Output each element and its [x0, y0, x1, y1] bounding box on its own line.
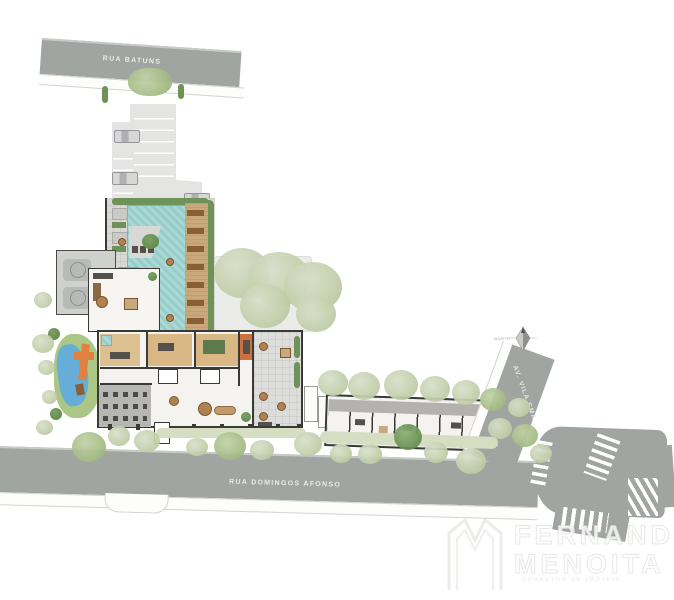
watermark-name-line1: FERNANDO: [514, 522, 674, 549]
tree: [72, 432, 106, 462]
parking-stalls: [134, 108, 174, 184]
table: [277, 402, 286, 411]
tree: [34, 292, 52, 308]
furniture: [355, 419, 365, 425]
tree: [36, 420, 53, 435]
planter: [294, 336, 300, 358]
bush: [50, 408, 62, 420]
round-table: [169, 396, 179, 406]
service-structure: [304, 386, 318, 422]
bench: [258, 422, 272, 426]
table: [166, 258, 174, 266]
tree: [330, 444, 352, 463]
table: [259, 392, 268, 401]
play-structure: [74, 352, 94, 360]
lounger: [112, 208, 128, 220]
tree: [348, 372, 380, 400]
watermark-tagline: CORRETOR DE IMÓVEIS: [522, 577, 621, 583]
tree: [186, 438, 208, 456]
elevator-core: [158, 369, 178, 384]
play-equipment: [75, 383, 85, 395]
site-plan: RUA BATUNS: [0, 0, 674, 600]
tree: [318, 370, 348, 396]
tree: [214, 432, 246, 460]
hedge: [178, 84, 184, 99]
tree: [108, 426, 130, 446]
table: [280, 348, 291, 358]
car-icon: [112, 172, 138, 185]
driveway-curb-cut: [104, 493, 169, 514]
watermark-logo-m-icon: [442, 516, 508, 594]
tree: [456, 448, 486, 474]
plant: [148, 272, 157, 281]
plant: [241, 412, 251, 422]
tree: [240, 284, 290, 328]
deck-lounger: [187, 264, 204, 270]
tree: [42, 390, 57, 404]
square-table: [124, 298, 138, 310]
gym-equipment-row: [103, 416, 147, 421]
tree: [480, 388, 506, 411]
watermark-name-line2: MENOITA: [514, 551, 665, 578]
deck-lounger: [187, 300, 204, 306]
deck-lounger: [187, 318, 204, 324]
counter: [93, 273, 113, 279]
dining-table: [214, 406, 236, 415]
court-circle: [70, 262, 86, 278]
tree: [294, 432, 322, 456]
deck-lounger: [187, 210, 204, 216]
tree: [32, 334, 54, 353]
round-table: [198, 402, 212, 416]
table: [118, 238, 126, 246]
elevator-core: [200, 369, 220, 384]
tree: [296, 296, 336, 332]
gym-equipment-row: [103, 392, 147, 397]
table: [259, 342, 268, 351]
tree: [38, 360, 55, 375]
in-pool-chair: [132, 246, 138, 253]
car-icon: [114, 130, 140, 143]
hedge: [102, 86, 108, 103]
pool-planter: [142, 234, 159, 249]
hedge: [112, 222, 126, 228]
tree: [452, 380, 480, 405]
crosswalk: [628, 478, 658, 516]
tree: [424, 442, 448, 463]
sofa: [110, 352, 130, 359]
tree: [508, 398, 530, 417]
gym-equipment-row: [103, 404, 147, 409]
tree: [250, 440, 274, 460]
deck-lounger: [187, 282, 204, 288]
deck-lounger: [187, 228, 204, 234]
compass-rose-icon: [508, 325, 538, 353]
ball-pit: [101, 335, 112, 346]
tree: [358, 444, 382, 464]
table: [166, 314, 174, 322]
rug: [203, 340, 225, 354]
tree: [530, 444, 552, 463]
table: [259, 412, 268, 421]
tree: [512, 424, 538, 447]
table: [158, 343, 174, 351]
tree: [488, 418, 512, 439]
court-circle: [70, 290, 86, 306]
deck-lounger: [187, 246, 204, 252]
wall: [194, 332, 196, 368]
wall: [238, 332, 240, 386]
tree: [134, 430, 160, 452]
sofa: [243, 340, 250, 354]
tree: [420, 376, 450, 402]
column: [136, 424, 140, 430]
furniture: [451, 422, 461, 428]
planter: [294, 362, 300, 388]
round-table: [96, 296, 108, 308]
tree: [384, 370, 418, 400]
tree: [128, 68, 172, 96]
wall: [146, 332, 148, 368]
tree: [394, 424, 422, 450]
